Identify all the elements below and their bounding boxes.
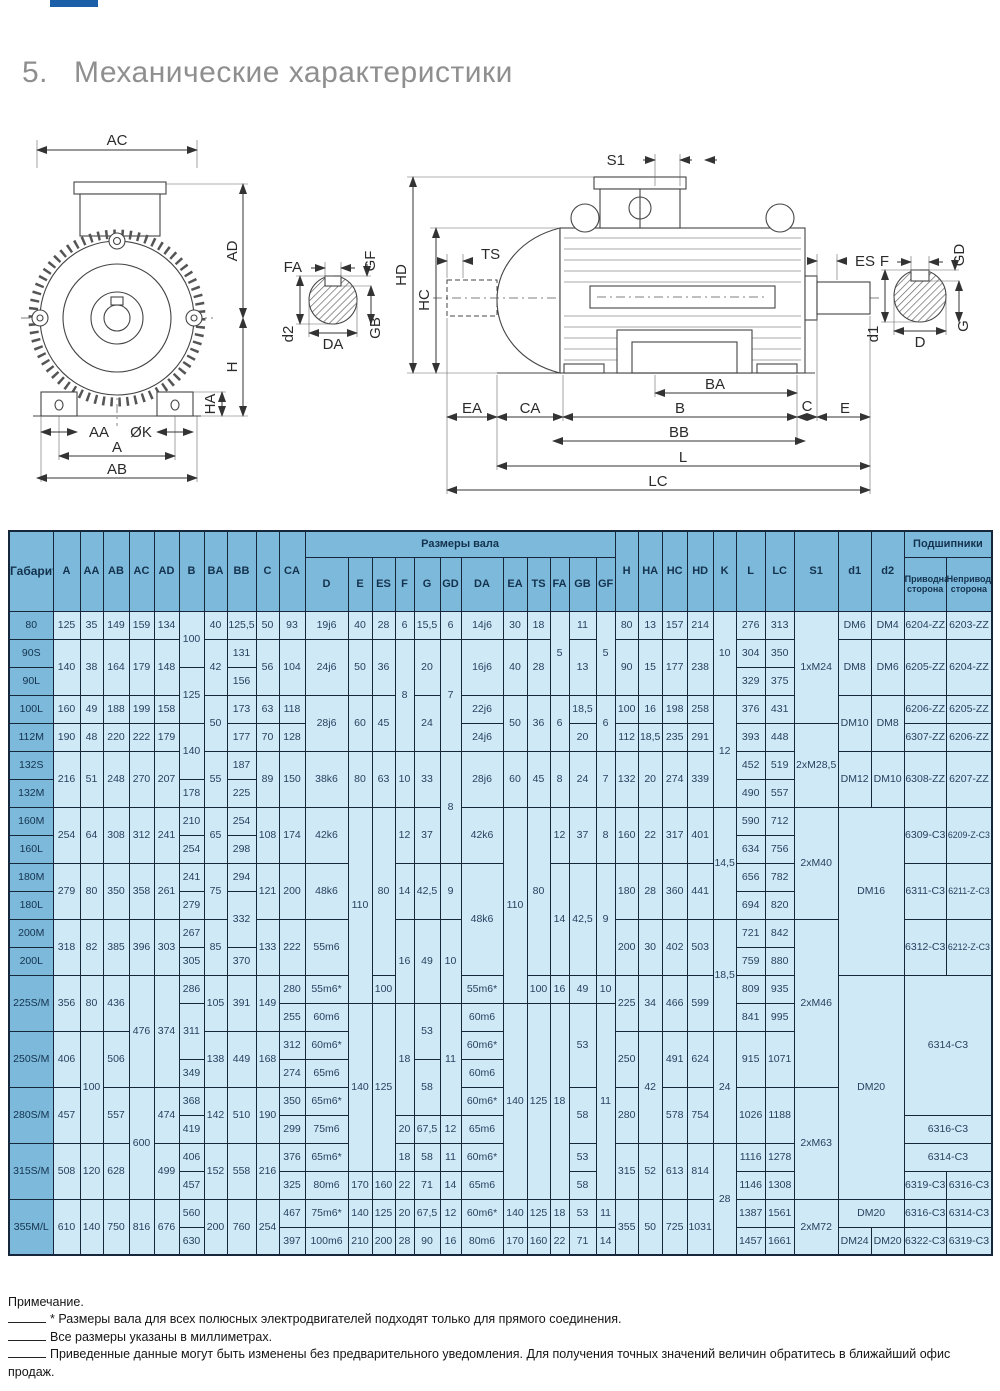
table-cell: 11: [569, 611, 596, 639]
table-cell: 40: [503, 639, 527, 695]
table-cell: 311: [179, 1003, 204, 1059]
table-cell: 33: [414, 751, 440, 807]
column-header: AD: [154, 531, 179, 611]
table-cell: 436: [103, 975, 129, 1031]
table-cell: 634: [736, 835, 765, 863]
table-cell: 374: [154, 975, 179, 1087]
table-cell: 125: [372, 1003, 395, 1171]
table-cell: 60m6: [305, 1003, 348, 1031]
table-cell: 510: [227, 1087, 256, 1143]
table-cell: 200: [372, 1227, 395, 1255]
table-cell: 80: [372, 807, 395, 975]
table-cell: 1071: [765, 1031, 794, 1087]
table-cell: 12: [440, 1115, 461, 1143]
table-cell: 6319-C3: [946, 1227, 992, 1255]
column-header: AC: [129, 531, 154, 611]
shaft-detail-de: F GD d1 G D: [865, 244, 972, 351]
table-cell: 93: [279, 611, 305, 639]
table-cell: 65m6: [461, 1115, 503, 1143]
table-cell: 60m6: [461, 1059, 503, 1087]
table-cell: 18: [550, 1003, 569, 1199]
table-cell: 42,5: [569, 863, 596, 975]
table-cell: 6311-C3: [904, 863, 946, 919]
table-cell: 7: [596, 751, 615, 807]
table-cell: 71: [569, 1227, 596, 1255]
table-cell: 160: [372, 1171, 395, 1199]
table-cell: 220: [103, 723, 129, 751]
dim-label-ea: EA: [462, 400, 482, 417]
table-cell: 49: [569, 975, 596, 1003]
table-cell: 18: [527, 611, 550, 639]
table-cell: 6316-C3: [904, 1199, 946, 1227]
table-cell: 174: [279, 807, 305, 863]
row-header: 160M: [9, 807, 53, 835]
dim-label-d: D: [915, 334, 926, 351]
table-cell: 60m6*: [461, 1199, 503, 1227]
table-cell: 6309-C3: [904, 807, 946, 863]
table-cell: 28: [527, 639, 550, 695]
table-cell: 56: [256, 639, 279, 695]
table-cell: 100: [179, 611, 204, 667]
notes-section: Примечание. * Размеры вала для всех полю…: [8, 1295, 983, 1381]
dim-label-bb: BB: [669, 424, 689, 441]
column-header: B: [179, 531, 204, 611]
table-cell: DM4: [871, 611, 904, 639]
table-cell: 12: [395, 807, 414, 863]
table-cell: 149: [256, 975, 279, 1031]
table-cell: 125: [527, 1003, 550, 1199]
table-cell: DM8: [871, 695, 904, 751]
dim-label-d1: d1: [865, 326, 882, 343]
table-cell: 8: [440, 751, 461, 863]
column-header: LC: [765, 531, 794, 611]
page-title: 5.Механические характеристики: [22, 56, 513, 90]
table-cell: 358: [129, 863, 154, 919]
note-item: Все размеры указаны в миллиметрах.: [8, 1329, 983, 1347]
table-cell: 499: [154, 1143, 179, 1199]
table-cell: 474: [154, 1087, 179, 1143]
table-cell: 261: [154, 863, 179, 919]
table-cell: 13: [569, 639, 596, 695]
table-cell: 24: [414, 695, 440, 751]
table-cell: 36: [527, 695, 550, 751]
table-cell: 51: [80, 751, 103, 807]
motor-dimension-drawing: AC AD H HA AA ØK A AB FA GF: [15, 128, 992, 523]
table-cell: 20: [395, 1115, 414, 1143]
table-cell: 298: [227, 835, 256, 863]
table-cell: 133: [256, 919, 279, 975]
table-cell: 10: [395, 751, 414, 807]
table-cell: 42,5: [414, 863, 440, 919]
table-cell: 60: [348, 695, 372, 751]
dim-label-e: E: [840, 400, 850, 417]
table-cell: 303: [154, 919, 179, 975]
table-cell: 55m6: [305, 919, 348, 975]
table-cell: 6314-C3: [946, 1199, 992, 1227]
table-cell: 241: [179, 863, 204, 891]
table-cell: 280: [615, 1087, 638, 1143]
table-cell: 40: [348, 611, 372, 639]
column-header: Приводная сторона: [904, 557, 946, 611]
table-cell: 210: [179, 807, 204, 835]
table-cell: 6312-C3: [904, 919, 946, 975]
table-cell: 14: [440, 1171, 461, 1199]
table-cell: 6322-C3: [904, 1227, 946, 1255]
table-cell: 65m6*: [305, 1143, 348, 1171]
notes-list: * Размеры вала для всех полюсных электро…: [8, 1311, 983, 1381]
column-header: CA: [279, 531, 305, 611]
table-cell: 329: [736, 667, 765, 695]
row-header: 112M: [9, 723, 53, 751]
table-cell: 28: [713, 1143, 736, 1255]
table-cell: 1026: [736, 1087, 765, 1143]
table-cell: 750: [103, 1199, 129, 1255]
table-cell: 207: [154, 751, 179, 807]
table-cell: 6211-Z-C3: [946, 863, 992, 919]
table-cell: 178: [179, 779, 204, 807]
table-cell: 118: [279, 695, 305, 723]
table-cell: 280: [279, 975, 305, 1003]
table-cell: 30: [638, 919, 662, 975]
table-cell: 2xM28,5: [794, 723, 838, 807]
table-cell: 28: [638, 863, 662, 919]
table-cell: 222: [279, 919, 305, 975]
table-cell: 312: [279, 1031, 305, 1059]
table-cell: 255: [279, 1003, 305, 1031]
table-cell: 370: [227, 947, 256, 975]
note-underline: [8, 1311, 46, 1323]
table-cell: 782: [765, 863, 794, 891]
table-cell: 37: [414, 807, 440, 863]
table-row: 160M254643083122412106525410817442k61108…: [9, 807, 992, 835]
technical-drawings: AC AD H HA AA ØK A AB FA GF: [15, 128, 992, 523]
table-cell: 356: [53, 975, 80, 1031]
table-cell: 168: [256, 1031, 279, 1087]
note-text: Приведенные данные могут быть изменены б…: [8, 1347, 950, 1379]
table-cell: 14j6: [461, 611, 503, 639]
table-cell: 48k6: [461, 863, 503, 975]
dim-label-hc: HC: [416, 289, 433, 311]
table-cell: 270: [129, 751, 154, 807]
table-cell: 177: [227, 723, 256, 751]
table-cell: 406: [53, 1031, 80, 1087]
table-cell: 38k6: [305, 751, 348, 807]
table-cell: 19j6: [305, 611, 348, 639]
table-cell: 110: [503, 807, 527, 1003]
table-cell: 6: [440, 611, 461, 639]
dim-label-fa: FA: [284, 259, 302, 276]
table-cell: 50: [256, 611, 279, 639]
column-header: L: [736, 531, 765, 611]
column-header: GB: [569, 557, 596, 611]
dim-label-b: B: [675, 400, 685, 417]
table-cell: DM20: [838, 975, 904, 1199]
table-cell: 112: [615, 723, 638, 751]
table-cell: 6206-ZZ: [904, 695, 946, 723]
table-cell: 16: [440, 1227, 461, 1255]
table-cell: 279: [179, 891, 204, 919]
table-cell: 24: [713, 1031, 736, 1143]
table-cell: 6203-ZZ: [946, 611, 992, 639]
table-cell: 58: [569, 1087, 596, 1143]
table-cell: 6314-C3: [904, 975, 992, 1115]
table-cell: 63: [372, 751, 395, 807]
table-cell: 506: [103, 1031, 129, 1087]
table-cell: 179: [154, 723, 179, 751]
column-header: BB: [227, 531, 256, 611]
dim-label-g: G: [955, 320, 972, 332]
table-row: 132S21651248270207551878915038k680631033…: [9, 751, 992, 779]
row-header: 132M: [9, 779, 53, 807]
table-cell: 30: [503, 611, 527, 639]
note-text: * Размеры вала для всех полюсных электро…: [50, 1312, 622, 1326]
table-cell: DM10: [871, 751, 904, 807]
table-cell: 149: [103, 611, 129, 639]
table-cell: 50: [503, 695, 527, 751]
table-cell: 80: [527, 807, 550, 975]
table-cell: 349: [179, 1059, 204, 1087]
table-cell: 140: [53, 639, 80, 695]
table-cell: 49: [414, 919, 440, 1003]
table-cell: 159: [129, 611, 154, 639]
column-header: Габарит: [9, 531, 53, 611]
table-cell: 16: [395, 919, 414, 1003]
table-cell: 350: [279, 1087, 305, 1115]
table-cell: 108: [256, 807, 279, 863]
table-cell: 55: [204, 751, 227, 807]
table-cell: 200: [204, 1199, 227, 1255]
table-cell: 476: [129, 975, 154, 1087]
table-cell: 1661: [765, 1227, 794, 1255]
table-cell: 694: [736, 891, 765, 919]
table-cell: 419: [179, 1115, 204, 1143]
table-cell: 756: [765, 835, 794, 863]
table-cell: 725: [662, 1199, 687, 1255]
table-cell: 712: [765, 807, 794, 835]
table-cell: 80m6: [461, 1227, 503, 1255]
table-row: 100L16049188199158501736311828j660452422…: [9, 695, 992, 723]
column-header: HD: [687, 531, 713, 611]
table-cell: 58: [569, 1171, 596, 1199]
table-cell: 60m6*: [305, 1031, 348, 1059]
table-cell: 28: [372, 611, 395, 639]
dim-label-k: ØK: [130, 424, 152, 441]
table-cell: 142: [204, 1087, 227, 1143]
column-header: DA: [461, 557, 503, 611]
table-cell: 248: [103, 751, 129, 807]
table-cell: 350: [765, 639, 794, 667]
table-cell: 315: [615, 1143, 638, 1199]
side-view-drawing: S1 TS ES HD HC: [393, 152, 883, 494]
table-cell: 305: [179, 947, 204, 975]
table-cell: 75: [204, 863, 227, 919]
table-cell: 148: [154, 639, 179, 695]
dim-label-f: F: [880, 253, 889, 270]
table-cell: 53: [569, 1143, 596, 1171]
table-cell: 519: [765, 751, 794, 779]
table-cell: 8: [550, 751, 569, 807]
table-cell: 58: [414, 1143, 440, 1171]
table-cell: 286: [179, 975, 204, 1003]
dim-label-c: C: [802, 398, 813, 415]
table-cell: 125,5: [227, 611, 256, 639]
table-row: 90S14038164179148421315610424j6503682071…: [9, 639, 992, 667]
table-cell: 140: [503, 1003, 527, 1199]
table-cell: 294: [227, 863, 256, 891]
table-cell: 190: [53, 723, 80, 751]
table-cell: 1561: [765, 1199, 794, 1227]
table-cell: 60: [503, 751, 527, 807]
column-header: d2: [871, 531, 904, 611]
dim-label-ca: CA: [520, 400, 541, 417]
table-cell: 2xM40: [794, 807, 838, 919]
table-cell: 65: [204, 807, 227, 863]
table-cell: 13: [638, 611, 662, 639]
table-cell: 375: [765, 667, 794, 695]
table-cell: 125: [527, 1199, 550, 1227]
table-cell: 28j6: [461, 751, 503, 807]
table-cell: 14,5: [713, 807, 736, 919]
table-cell: 225: [615, 975, 638, 1031]
table-cell: DM6: [871, 639, 904, 695]
table-cell: 397: [279, 1227, 305, 1255]
table-cell: 75m6*: [305, 1199, 348, 1227]
table-cell: 20: [569, 723, 596, 751]
table-cell: 90: [615, 639, 638, 695]
table-cell: 431: [765, 695, 794, 723]
table-cell: 105: [204, 975, 227, 1031]
column-header: d1: [838, 531, 871, 611]
table-cell: 8: [596, 807, 615, 863]
table-cell: 100: [615, 695, 638, 723]
table-cell: 8: [395, 639, 414, 751]
dim-label-lc: LC: [648, 473, 667, 490]
table-cell: 35: [80, 611, 103, 639]
table-cell: 995: [765, 1003, 794, 1031]
table-cell: 241: [154, 807, 179, 863]
table-cell: 6314-C3: [904, 1143, 992, 1171]
table-cell: 67,5: [414, 1199, 440, 1227]
table-cell: 235: [662, 723, 687, 751]
table-cell: 179: [129, 639, 154, 695]
row-header: 160L: [9, 835, 53, 863]
table-cell: 841: [736, 1003, 765, 1031]
table-cell: 64: [80, 807, 103, 863]
dim-label-a: A: [112, 439, 122, 456]
table-cell: 935: [765, 975, 794, 1003]
table-cell: 449: [227, 1031, 256, 1087]
table-cell: 60m6*: [461, 1087, 503, 1115]
table-cell: 18: [395, 1143, 414, 1171]
row-header: 200L: [9, 947, 53, 975]
table-row: 801253514915913410040125,5509319j6402861…: [9, 611, 992, 639]
table-cell: 6207-ZZ: [946, 751, 992, 807]
table-cell: 125: [53, 611, 80, 639]
table-cell: 82: [80, 919, 103, 975]
table-cell: 140: [348, 1003, 372, 1171]
table-cell: 590: [736, 807, 765, 835]
table-cell: 880: [765, 947, 794, 975]
table-cell: 6: [550, 695, 569, 751]
table-cell: 225: [227, 779, 256, 807]
front-view-drawing: AC AD H HA AA ØK A AB: [21, 132, 248, 482]
table-cell: 24j6: [461, 723, 503, 751]
table-cell: 188: [103, 695, 129, 723]
row-header: 355M/L: [9, 1199, 53, 1255]
table-cell: 170: [348, 1171, 372, 1199]
table-cell: 160: [527, 1227, 550, 1255]
table-cell: 452: [736, 751, 765, 779]
table-cell: 22j6: [461, 695, 503, 723]
table-cell: 150: [279, 751, 305, 807]
table-cell: 254: [227, 807, 256, 835]
table-cell: 60m6: [461, 1003, 503, 1031]
table-cell: 199: [129, 695, 154, 723]
column-header: E: [348, 557, 372, 611]
column-header: H: [615, 531, 638, 611]
table-cell: 2xM72: [794, 1199, 838, 1255]
table-cell: 5: [550, 611, 569, 695]
table-cell: 1116: [736, 1143, 765, 1171]
table-cell: 80: [80, 975, 103, 1031]
table-cell: 816: [129, 1199, 154, 1255]
table-cell: 65m6*: [305, 1087, 348, 1115]
table-cell: 157: [662, 611, 687, 639]
table-cell: 71: [414, 1171, 440, 1199]
section-title-text: Механические характеристики: [74, 56, 513, 89]
table-cell: 332: [227, 891, 256, 947]
dim-label-es: ES: [855, 253, 875, 270]
table-cell: 12: [550, 807, 569, 863]
table-cell: 628: [103, 1143, 129, 1199]
row-header: 90S: [9, 639, 53, 667]
row-header: 280S/M: [9, 1087, 53, 1143]
table-cell: 60m6*: [461, 1143, 503, 1171]
table-cell: 258: [687, 695, 713, 723]
table-cell: 131: [227, 639, 256, 667]
table-cell: 15,5: [414, 611, 440, 639]
table-cell: 48: [80, 723, 103, 751]
dim-label-da: DA: [323, 336, 344, 353]
row-header: 180M: [9, 863, 53, 891]
table-cell: 254: [256, 1199, 279, 1255]
table-cell: DM6: [838, 611, 871, 639]
table-cell: 65m6: [461, 1171, 503, 1199]
row-header: 80: [9, 611, 53, 639]
table-cell: 140: [179, 723, 204, 779]
column-header: HA: [638, 531, 662, 611]
dim-label-h: H: [224, 362, 241, 373]
row-header: 250S/M: [9, 1031, 53, 1087]
column-header: GD: [440, 557, 461, 611]
row-header: 100L: [9, 695, 53, 723]
column-header: FA: [550, 557, 569, 611]
column-header: A: [53, 531, 80, 611]
table-cell: 760: [227, 1199, 256, 1255]
column-header: S1: [794, 531, 838, 611]
column-header: K: [713, 531, 736, 611]
table-cell: 448: [765, 723, 794, 751]
table-cell: 1387: [736, 1199, 765, 1227]
table-cell: 222: [129, 723, 154, 751]
table-cell: 18: [395, 1003, 414, 1115]
table-cell: 15: [638, 639, 662, 695]
table-cell: 158: [154, 695, 179, 723]
table-cell: 250: [615, 1031, 638, 1087]
table-cell: 313: [765, 611, 794, 639]
column-header: AA: [80, 531, 103, 611]
table-cell: 120: [80, 1143, 103, 1199]
